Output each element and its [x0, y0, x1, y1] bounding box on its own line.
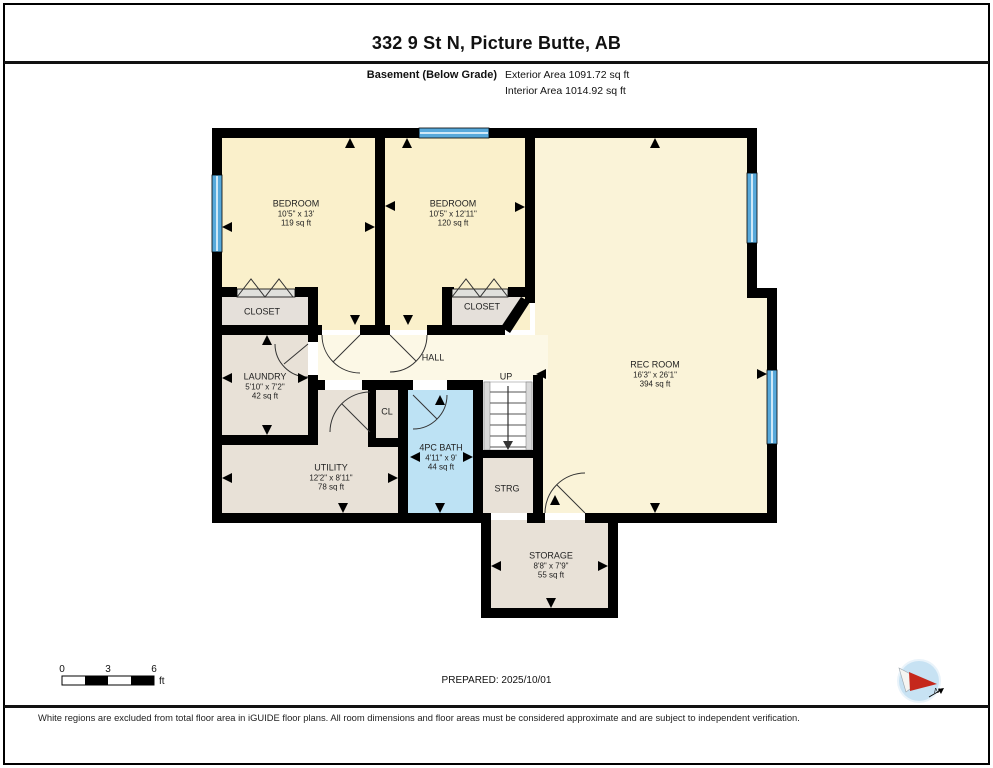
room-area: 394 sq ft: [630, 379, 680, 388]
room-label-utility: UTILITY 12'2" x 8'11" 78 sq ft: [309, 462, 352, 491]
room-recroom-area: [535, 138, 767, 513]
footer-divider: [4, 705, 989, 708]
room-name: 4PC BATH: [419, 442, 462, 453]
disclaimer-text: White regions are excluded from total fl…: [38, 712, 800, 723]
floorplan-drawing: [0, 0, 993, 768]
room-label-recroom: REC ROOM 16'3" x 26'1" 394 sq ft: [630, 359, 680, 388]
room-name: LAUNDRY: [244, 371, 287, 382]
room-label-closet1: CLOSET: [244, 307, 280, 318]
window-left: [212, 175, 222, 252]
room-label-bedroom1: BEDROOM 10'5" x 13' 119 sq ft: [273, 198, 320, 227]
room-name: BEDROOM: [273, 198, 320, 209]
room-label-hall: HALL: [422, 353, 445, 364]
window-top: [419, 128, 489, 138]
scale-label-0: 0: [59, 664, 65, 675]
room-name: STORAGE: [529, 550, 573, 561]
room-label-laundry: LAUNDRY 5'10" x 7'2" 42 sq ft: [244, 371, 287, 400]
floorplan-page: 332 9 St N, Picture Butte, AB Basement (…: [0, 0, 993, 768]
room-area: 120 sq ft: [429, 218, 477, 227]
room-label-up: UP: [500, 372, 513, 383]
room-area: 78 sq ft: [309, 482, 352, 491]
room-dims: 4'11" x 9': [419, 453, 462, 462]
stairs-up: [484, 382, 532, 450]
room-dims: 8'8" x 7'9": [529, 561, 573, 570]
room-name: CLOSET: [464, 302, 500, 313]
room-name: HALL: [422, 353, 445, 364]
room-label-cl: CL: [381, 407, 393, 418]
room-name: UTILITY: [309, 462, 352, 473]
room-name: BEDROOM: [429, 198, 477, 209]
room-area: 42 sq ft: [244, 391, 287, 400]
room-label-strg: STRG: [494, 484, 519, 495]
room-area: 119 sq ft: [273, 218, 320, 227]
room-label-bedroom2: BEDROOM 10'5" x 12'11" 120 sq ft: [429, 198, 477, 227]
prepared-date: PREPARED: 2025/10/01: [0, 675, 993, 686]
room-name: REC ROOM: [630, 359, 680, 370]
room-dims: 16'3" x 26'1": [630, 370, 680, 379]
window-right-lower: [767, 370, 777, 444]
room-name: UP: [500, 372, 513, 383]
room-dims: 12'2" x 8'11": [309, 473, 352, 482]
scale-label-3: 3: [105, 664, 111, 675]
room-dims: 10'5" x 13': [273, 209, 320, 218]
room-label-storage: STORAGE 8'8" x 7'9" 55 sq ft: [529, 550, 573, 579]
window-right-upper: [747, 173, 757, 243]
room-dims: 10'5" x 12'11": [429, 209, 477, 218]
compass-north-label: N: [934, 686, 939, 695]
room-label-bath: 4PC BATH 4'11" x 9' 44 sq ft: [419, 442, 462, 471]
room-name: STRG: [494, 484, 519, 495]
room-name: CLOSET: [244, 307, 280, 318]
room-label-closet2: CLOSET: [464, 302, 500, 313]
scale-label-6: 6: [151, 664, 157, 675]
room-dims: 5'10" x 7'2": [244, 382, 287, 391]
room-name: CL: [381, 407, 393, 418]
room-area: 55 sq ft: [529, 570, 573, 579]
room-area: 44 sq ft: [419, 462, 462, 471]
